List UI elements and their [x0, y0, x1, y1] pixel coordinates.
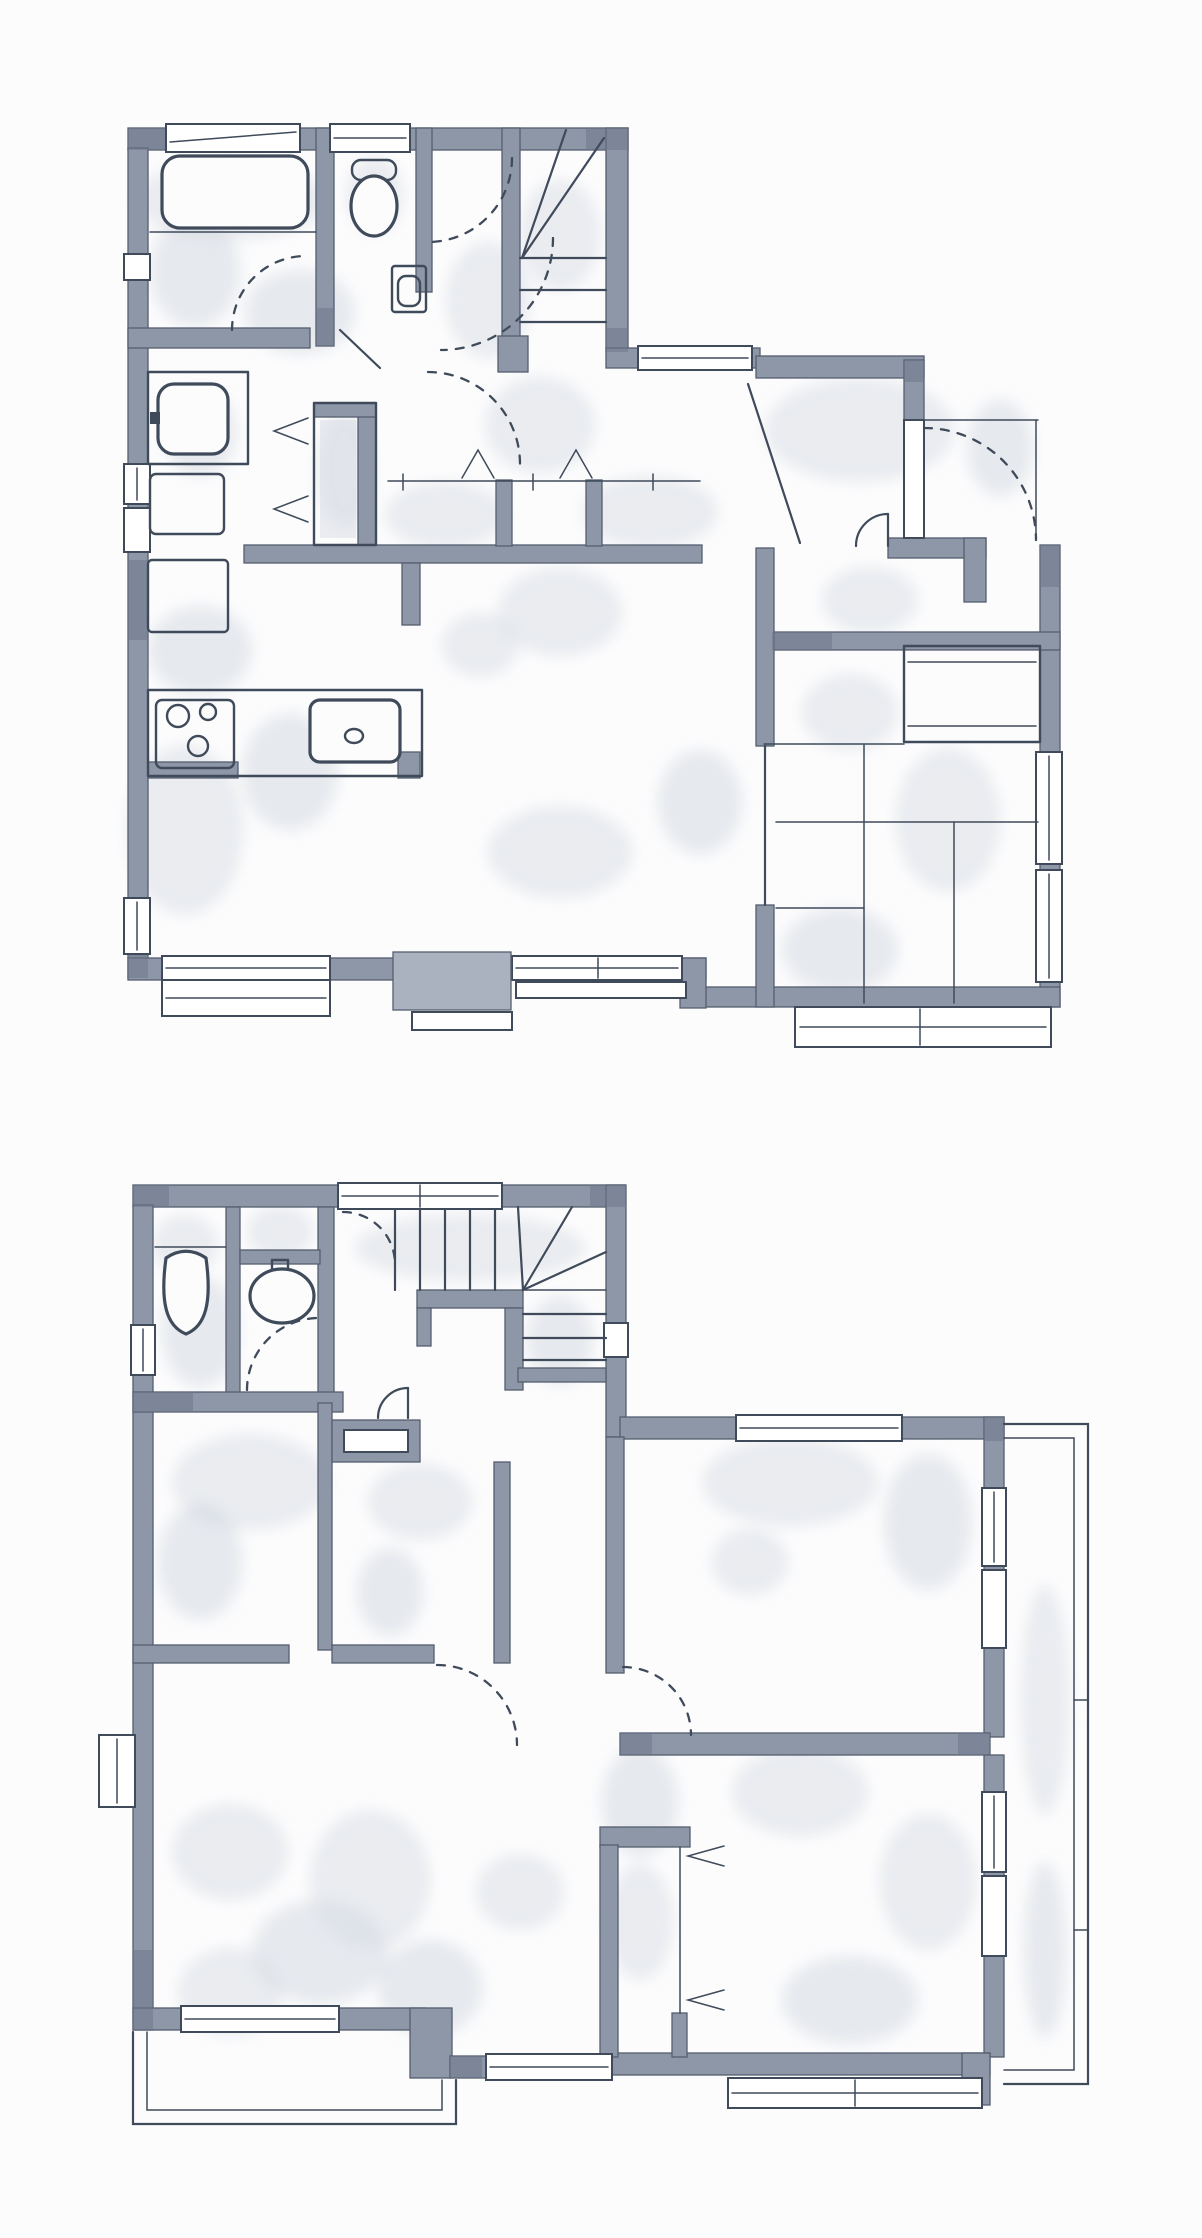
bay-window: [516, 982, 686, 998]
oshiire-closet: [904, 646, 1040, 742]
lower-floor-plan: [99, 1183, 1088, 2124]
closet-door: [378, 1388, 408, 1418]
window: [131, 1325, 155, 1375]
window: [1036, 752, 1062, 864]
bifold-mark: [688, 1990, 724, 2010]
washing-machine: [150, 474, 224, 534]
window: [982, 1488, 1006, 1566]
window: [982, 1792, 1006, 1872]
floor-plan-sheet: [0, 0, 1202, 2238]
left-balcony: [133, 2032, 456, 2124]
window: [736, 1415, 902, 1441]
upper-floor-plan: [124, 124, 1062, 1047]
bedroom-door-arc: [623, 1667, 691, 1735]
window: [982, 1570, 1006, 1648]
washroom-door-arc: [247, 1318, 319, 1390]
door-arc: [428, 158, 512, 242]
window: [604, 1323, 628, 1357]
floor-plan-drawing: [0, 0, 1202, 2238]
window: [124, 254, 150, 280]
entry-doorway: [904, 420, 924, 538]
kitchen-sink: [310, 700, 400, 762]
window: [166, 124, 300, 152]
bay-window: [162, 980, 330, 1016]
window: [638, 346, 752, 370]
door-leaf: [340, 330, 380, 368]
wash-basin: [250, 1260, 314, 1323]
bay-window: [99, 1735, 135, 1807]
window: [181, 2006, 339, 2032]
bay-window: [728, 2078, 982, 2108]
window: [512, 956, 682, 980]
porch-step: [393, 952, 512, 1030]
window: [330, 124, 410, 152]
window: [1036, 870, 1062, 982]
window: [124, 898, 150, 954]
window: [162, 956, 330, 980]
bifold-mark: [688, 1846, 724, 1866]
window: [982, 1876, 1006, 1956]
tatami-door: [856, 514, 888, 546]
window: [124, 464, 150, 504]
watercolor-washes: [127, 157, 1033, 992]
bay-window: [795, 1007, 1051, 1047]
window: [124, 508, 150, 552]
living-door-arc: [437, 1665, 517, 1745]
window: [338, 1183, 502, 1209]
bathtub: [150, 156, 316, 232]
window: [486, 2054, 612, 2080]
